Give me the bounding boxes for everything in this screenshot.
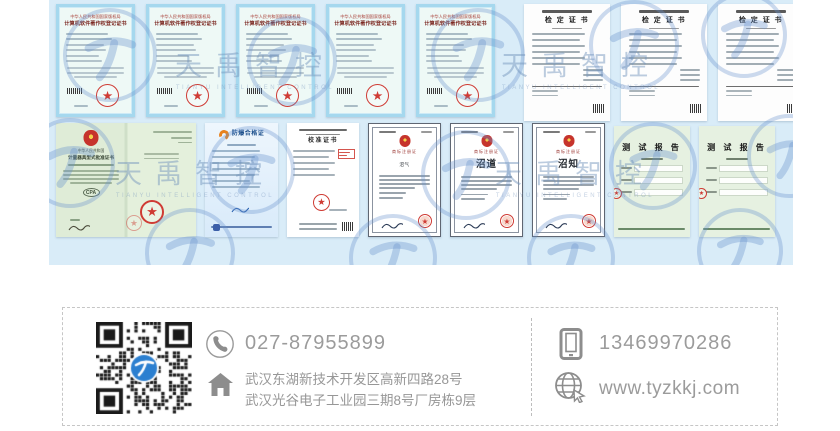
text-line (726, 57, 779, 59)
red-seal-icon: ★ (126, 215, 142, 231)
report-field-row (706, 189, 768, 196)
exproof-header: 防爆合格证 (219, 130, 265, 140)
text-line (532, 95, 558, 97)
contact-section: 027-87955899 武汉东湖新技术开发区高新四路28号 武汉光谷电子工业园… (62, 307, 778, 426)
text-line (426, 49, 467, 51)
mobile-icon (559, 328, 583, 360)
certificate-row-1: 中华人民共和国国家版权局计算机软件著作权登记证书★中华人民共和国国家版权局计算机… (56, 4, 793, 121)
certificate-title: 中华人民共和国 (78, 149, 105, 154)
text-line (726, 39, 774, 41)
text-line (585, 131, 596, 133)
barcode (787, 104, 793, 113)
text-line (66, 49, 107, 51)
text-line (629, 90, 655, 92)
text-line (726, 90, 752, 92)
text-line (70, 182, 112, 184)
certificate-title: 计算机软件著作权登记证书 (154, 21, 216, 28)
barcode (690, 104, 701, 113)
red-seal-icon: ★ (500, 214, 514, 228)
text-line (336, 38, 383, 40)
text-line (426, 33, 468, 35)
text-line (777, 69, 794, 71)
certificate-title: 计算机软件著作权登记证书 (64, 21, 126, 28)
qr-code (96, 322, 192, 414)
trademark-mark: 沼道 (476, 159, 497, 171)
certificate-title: 计量器具型式批准证书 (68, 155, 114, 161)
certificate-calibration: 校准证书★ (287, 123, 359, 237)
text-line (680, 74, 701, 76)
text-line (746, 28, 775, 30)
national-emblem-icon (481, 135, 492, 147)
text-line (629, 86, 700, 87)
text-line (649, 28, 678, 30)
approval-left-page: 中华人民共和国计量器具型式批准证书CPA (56, 123, 126, 237)
text-line (736, 10, 786, 13)
text-line (156, 55, 190, 57)
text-line (703, 228, 770, 230)
red-seal-icon: ★ (699, 188, 707, 199)
national-emblem-icon (84, 130, 99, 146)
text-line (680, 79, 701, 81)
text-line (212, 156, 255, 158)
approval-right-page: ★★ (126, 123, 196, 237)
signature (381, 218, 403, 227)
text-line (70, 219, 80, 221)
text-line (339, 155, 347, 156)
certificate-title: 校准证书 (308, 138, 338, 146)
certificate-title: 商标注册证 (474, 149, 499, 154)
text-line (461, 198, 485, 200)
text-line (336, 49, 377, 51)
field-label (621, 191, 632, 193)
report-field-row (706, 165, 768, 172)
text-line (532, 90, 558, 92)
certificate-trademark: 商标注册证沼知★ (532, 123, 605, 237)
text-line (344, 76, 388, 78)
report-field-row (621, 189, 683, 196)
trademark-mark: 沼知 (558, 159, 579, 171)
text-line (583, 69, 604, 71)
report-field-row (621, 177, 683, 184)
text-line (629, 51, 677, 53)
text-line (299, 223, 336, 225)
text-line (337, 72, 394, 74)
text-line (777, 79, 794, 81)
red-seal-icon: ★ (313, 194, 330, 211)
certificate-title: 中华人民共和国国家版权局 (160, 14, 210, 19)
text-line (156, 38, 203, 40)
text-line (726, 158, 749, 160)
red-seal-icon: ★ (140, 200, 164, 224)
red-seal-icon: ★ (276, 84, 299, 107)
signature (231, 202, 249, 211)
text-line (66, 60, 103, 62)
text-line (299, 129, 347, 131)
text-line (461, 184, 511, 186)
certificate-trademark: 商标注册证沼道★ (450, 123, 523, 237)
text-line (254, 105, 269, 107)
text-line (543, 194, 571, 196)
report-field-row (706, 177, 768, 184)
text-line (66, 55, 100, 57)
text-line (246, 60, 283, 62)
text-line (329, 209, 348, 211)
barcode (593, 104, 604, 113)
phone-icon (205, 329, 235, 359)
text-line (337, 67, 394, 69)
certificate-verify: 检 定 证 书 (524, 4, 610, 121)
text-line (379, 131, 397, 133)
text-line (246, 44, 284, 46)
certificate-title: 计算机软件著作权登记证书 (334, 21, 396, 28)
barcode (157, 88, 172, 94)
certificate-copyright: 中华人民共和国国家版权局计算机软件著作权登记证书★ (326, 4, 405, 117)
text-line (156, 49, 197, 51)
text-line (63, 174, 119, 176)
certificate-banner: 中华人民共和国国家版权局计算机软件著作权登记证书★中华人民共和国国家版权局计算机… (49, 0, 793, 265)
text-line (156, 60, 193, 62)
certificate-report: 测 试 报 告★ (614, 126, 690, 237)
red-seal-icon: ★ (366, 84, 389, 107)
certificate-trademark: 商标注册证沼气★ (368, 123, 441, 237)
field-box (719, 189, 768, 196)
text-line (157, 72, 214, 74)
text-line (254, 76, 298, 78)
certificate-verify: 检 定 证 书 (621, 4, 707, 121)
text-line (156, 33, 198, 35)
text-line (293, 162, 335, 164)
red-seal-icon: ★ (456, 84, 479, 107)
signature (545, 218, 567, 227)
certificate-title: 测 试 报 告 (622, 143, 682, 153)
text-line (629, 39, 677, 41)
text-line (212, 150, 260, 152)
text-line (178, 142, 192, 144)
text-line (74, 76, 118, 78)
trademark-inner: 商标注册证沼道★ (454, 127, 519, 233)
text-line (68, 164, 114, 166)
text-line (583, 74, 604, 76)
text-line (426, 55, 460, 57)
text-line (532, 51, 580, 53)
text-line (246, 38, 293, 40)
text-line (461, 188, 498, 190)
signature (68, 220, 90, 229)
certificate-exproof: 防爆合格证 (205, 123, 278, 237)
text-line (543, 131, 561, 133)
text-line (680, 69, 701, 71)
text-line (74, 105, 89, 107)
text-line (339, 152, 350, 153)
text-line (247, 67, 304, 69)
address: 武汉东湖新技术开发区高新四路28号 武汉光谷电子工业园三期8号厂房栋9层 (245, 370, 476, 412)
barcode (342, 222, 354, 231)
text-line (434, 105, 449, 107)
text-line (212, 168, 260, 170)
text-line (434, 76, 478, 78)
text-line (641, 158, 664, 160)
text-line (629, 33, 682, 35)
text-line (379, 187, 416, 189)
field-box (634, 177, 683, 184)
text-line (543, 188, 580, 190)
certificate-title: 商标注册证 (392, 149, 417, 154)
barcode (247, 88, 262, 94)
text-line (157, 67, 214, 69)
text-line (336, 55, 370, 57)
text-line (461, 176, 511, 178)
text-line (212, 162, 250, 164)
text-line (67, 67, 124, 69)
red-seal-icon: ★ (614, 188, 622, 199)
text-line (227, 144, 256, 146)
text-line (211, 226, 272, 228)
text-line (726, 45, 779, 47)
barcode (67, 88, 82, 94)
text-line (629, 57, 682, 59)
red-seal-icon: ★ (418, 214, 432, 228)
text-line (299, 228, 336, 230)
mobile-number[interactable]: 13469970286 (599, 332, 732, 355)
text-line (618, 228, 685, 230)
text-line (246, 49, 287, 51)
text-line (629, 45, 682, 47)
certificate-title: 中华人民共和国国家版权局 (250, 14, 300, 19)
text-line (306, 134, 339, 136)
certificate-title: 检 定 证 书 (642, 17, 686, 26)
red-stamp (338, 149, 355, 159)
text-line (63, 178, 119, 180)
text-line (543, 184, 593, 186)
certificate-title: 测 试 报 告 (707, 143, 767, 153)
cpa-badge: CPA (83, 188, 100, 197)
certificate-title: 计算机软件著作权登记证书 (424, 21, 486, 28)
certificate-title: 中华人民共和国国家版权局 (430, 14, 480, 19)
text-line (426, 44, 464, 46)
text-line (543, 176, 593, 178)
text-line (629, 63, 677, 65)
certificate-title: 商标注册证 (556, 149, 581, 154)
trademark-mark: 沼气 (399, 162, 409, 168)
field-label (706, 179, 717, 181)
text-line (726, 86, 793, 87)
text-line (543, 198, 567, 200)
text-line (63, 170, 119, 172)
text-line (532, 57, 585, 59)
text-line (726, 95, 752, 97)
trademark-inner: 商标注册证沼气★ (372, 127, 437, 233)
certificate-row-2: 中华人民共和国计量器具型式批准证书CPA★★防爆合格证校准证书★商标注册证沼气★… (56, 123, 775, 237)
text-line (427, 67, 484, 69)
national-emblem-icon (399, 135, 410, 147)
text-line (67, 72, 124, 74)
certificate-title: 检 定 证 书 (739, 17, 783, 26)
text-line (461, 194, 489, 196)
text-line (532, 33, 585, 35)
red-seal-icon: ★ (186, 84, 209, 107)
report-field-row (621, 165, 683, 172)
text-line (726, 33, 779, 35)
field-box (719, 177, 768, 184)
field-label (706, 167, 717, 169)
certificate-copyright: 中华人民共和国国家版权局计算机软件著作权登记证书★ (236, 4, 315, 117)
text-line (777, 74, 794, 76)
text-line (293, 174, 335, 176)
text-line (629, 95, 655, 97)
certificate-title: 检 定 证 书 (545, 17, 589, 26)
barcode (427, 88, 442, 94)
text-line (293, 156, 329, 158)
ex-logo-icon (217, 129, 230, 142)
certificate-verify: 检 定 证 书 (718, 4, 793, 121)
field-box (719, 165, 768, 172)
certificate-title: 中华人民共和国国家版权局 (70, 14, 120, 19)
mini-emblem-icon (213, 224, 220, 231)
certificate-title: 中华人民共和国国家版权局 (340, 14, 390, 19)
text-line (461, 131, 479, 133)
text-line (532, 45, 585, 47)
globe-icon (554, 371, 586, 403)
field-label (621, 179, 632, 181)
text-line (212, 180, 250, 182)
text-line (552, 28, 581, 30)
trademark-inner: 商标注册证沼知★ (536, 127, 601, 233)
text-line (639, 10, 689, 13)
contact-divider (531, 318, 532, 416)
text-line (246, 55, 280, 57)
text-line (144, 153, 179, 155)
certificate-report: 测 试 报 告★ (699, 126, 775, 237)
text-line (336, 60, 373, 62)
text-line (344, 105, 359, 107)
text-line (66, 38, 113, 40)
text-line (542, 10, 592, 13)
text-line (336, 33, 378, 35)
field-box (634, 165, 683, 172)
text-line (421, 131, 432, 133)
text-line (379, 179, 429, 181)
text-line (461, 180, 511, 182)
text-line (543, 180, 593, 182)
website-url[interactable]: www.tyzkkj.com (599, 378, 740, 400)
phone-number[interactable]: 027-87955899 (245, 332, 386, 355)
text-line (153, 131, 192, 133)
text-line (726, 51, 774, 53)
certificate-copyright: 中华人民共和国国家版权局计算机软件著作权登记证书★ (146, 4, 225, 117)
certificate-copyright: 中华人民共和国国家版权局计算机软件著作权登记证书★ (416, 4, 495, 117)
text-line (164, 105, 179, 107)
text-line (379, 197, 403, 199)
text-line (293, 150, 335, 152)
text-line (171, 137, 192, 139)
address-line-2: 武汉光谷电子工业园三期8号厂房栋9层 (245, 391, 476, 412)
field-label (621, 167, 632, 169)
certificate-approval: 中华人民共和国计量器具型式批准证书CPA★★ (56, 123, 196, 237)
certificate-title: 计算机软件著作权登记证书 (244, 21, 306, 28)
text-line (293, 168, 329, 170)
text-line (212, 174, 255, 176)
text-line (726, 63, 774, 65)
red-seal-icon: ★ (96, 84, 119, 107)
signature (463, 218, 485, 227)
certificate-copyright: 中华人民共和国国家版权局计算机软件著作权登记证书★ (56, 4, 135, 117)
text-line (66, 33, 108, 35)
text-line (532, 39, 580, 41)
text-line (66, 44, 104, 46)
text-line (336, 44, 374, 46)
barcode (337, 88, 352, 94)
text-line (379, 192, 407, 194)
text-line (379, 175, 429, 177)
text-line (156, 44, 194, 46)
text-line (164, 76, 208, 78)
text-line (583, 79, 604, 81)
address-line-1: 武汉东湖新技术开发区高新四路28号 (245, 370, 476, 391)
text-line (426, 60, 463, 62)
certificate-title: 防爆合格证 (232, 131, 265, 139)
text-line (379, 183, 429, 185)
national-emblem-icon (563, 135, 574, 147)
field-box (634, 189, 683, 196)
text-line (427, 72, 484, 74)
text-line (212, 186, 260, 188)
text-line (247, 72, 304, 74)
text-line (426, 38, 473, 40)
text-line (503, 131, 514, 133)
home-icon (207, 371, 234, 398)
text-line (144, 158, 179, 160)
text-line (532, 86, 603, 87)
field-label (706, 191, 717, 193)
text-line (532, 63, 580, 65)
text-line (246, 33, 288, 35)
red-seal-icon: ★ (582, 214, 596, 228)
